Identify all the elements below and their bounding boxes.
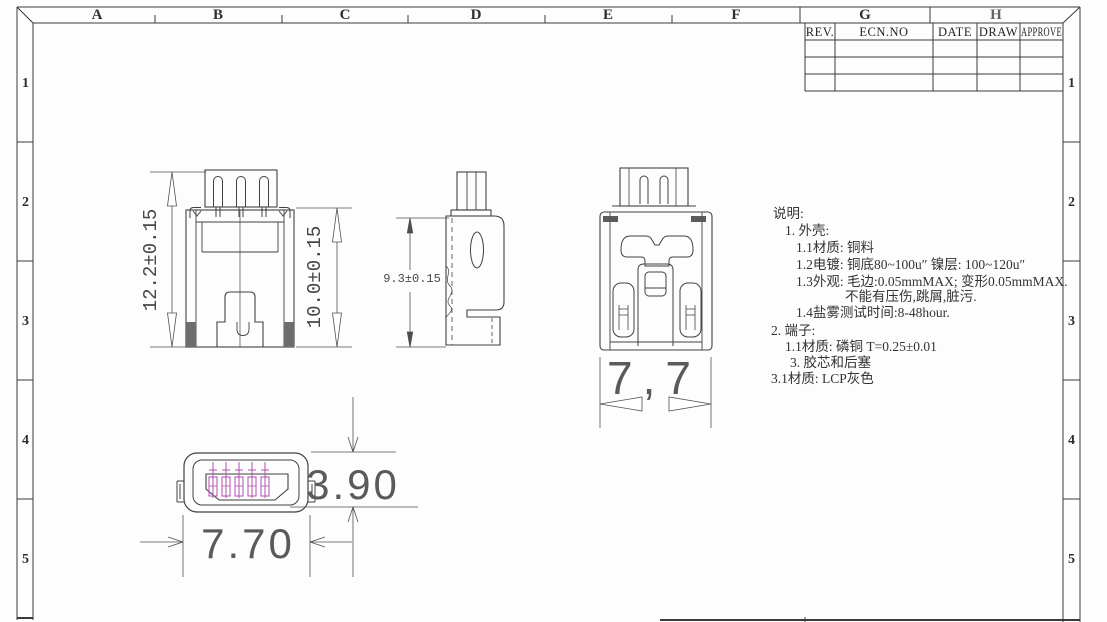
note-line: 1.4盐雾测试时间:8-48hour.: [796, 305, 950, 320]
column-label-b: B: [213, 7, 223, 23]
note-line: 1. 外壳:: [785, 223, 829, 238]
dimension-mating-width: 7.70: [201, 520, 295, 567]
row-label-3: 3: [1068, 314, 1075, 329]
dimension-opening-height: 3.90: [306, 461, 400, 508]
dimension-side-height: 9.3±0.15: [383, 272, 441, 286]
note-line: 不能有压伤,跳屑,脏污.: [845, 289, 977, 304]
row-label-5: 5: [1068, 552, 1075, 567]
note-line: 1.1材质: 磷铜 T=0.25±0.01: [785, 339, 937, 354]
row-label-4: 4: [22, 433, 29, 448]
revision-title-block: REV. ECN.NO DATE DRAW APPROVE: [805, 23, 1063, 91]
engineering-drawing-sheet: A B C D E F G H 1 2 3 4 5 1 2 3 4 5 REV.…: [0, 0, 1107, 622]
column-label-g: G: [859, 7, 871, 23]
row-label-4: 4: [1068, 433, 1075, 448]
front-view: [600, 168, 712, 350]
row-label-2: 2: [22, 195, 29, 210]
drawing-canvas: A B C D E F G H 1 2 3 4 5 1 2 3 4 5 REV.…: [0, 0, 1107, 622]
titleblock-header-draw: DRAW: [979, 25, 1018, 39]
frame-row-labels-left: 1 2 3 4 5: [22, 76, 29, 567]
note-line: 1.2电镀: 铜底80~100u″ 镍层: 100~120u″: [796, 256, 1025, 272]
note-line: 3. 胶芯和后塞: [790, 354, 871, 370]
row-label-5: 5: [22, 552, 29, 567]
row-label-3: 3: [22, 314, 29, 329]
row-label-1: 1: [22, 76, 29, 91]
titleblock-header-approve: APPROVE: [1021, 25, 1062, 39]
frame-column-labels: A B C D E F G H: [92, 7, 1003, 23]
frame-row-labels-right: 1 2 3 4 5: [1068, 76, 1075, 567]
column-label-a: A: [92, 7, 103, 23]
notes-block: 说明: 1. 外壳: 1.1材质: 铜料 1.2电镀: 铜底80~100u″ 镍…: [771, 206, 1068, 386]
row-label-2: 2: [1068, 195, 1075, 210]
note-line: 1.3外观: 毛边:0.05mmMAX; 变形0.05mmMAX.: [796, 274, 1068, 289]
note-line: 说明:: [773, 206, 804, 221]
dimension-body-height: 10.0±0.15: [304, 226, 326, 329]
note-line: 1.1材质: 铜料: [796, 240, 875, 255]
titleblock-header-date: DATE: [938, 25, 972, 39]
dimension-front-width: 7,7: [607, 352, 701, 404]
note-line: 2. 端子:: [771, 323, 815, 338]
column-label-c: C: [340, 7, 351, 23]
column-label-e: E: [603, 7, 613, 23]
titleblock-header-rev: REV.: [806, 25, 835, 39]
titleblock-header-ecn-no: ECN.NO: [859, 25, 908, 39]
row-label-1: 1: [1068, 76, 1075, 91]
column-label-f: F: [731, 7, 740, 23]
column-label-h: H: [990, 7, 1002, 23]
column-label-d: D: [471, 7, 482, 23]
back-view: [186, 170, 294, 347]
side-view: [446, 172, 504, 345]
mating-face-view: [177, 453, 315, 512]
dimension-overall-height: 12.2±0.15: [140, 209, 162, 312]
note-line: 3.1材质: LCP灰色: [771, 370, 874, 386]
